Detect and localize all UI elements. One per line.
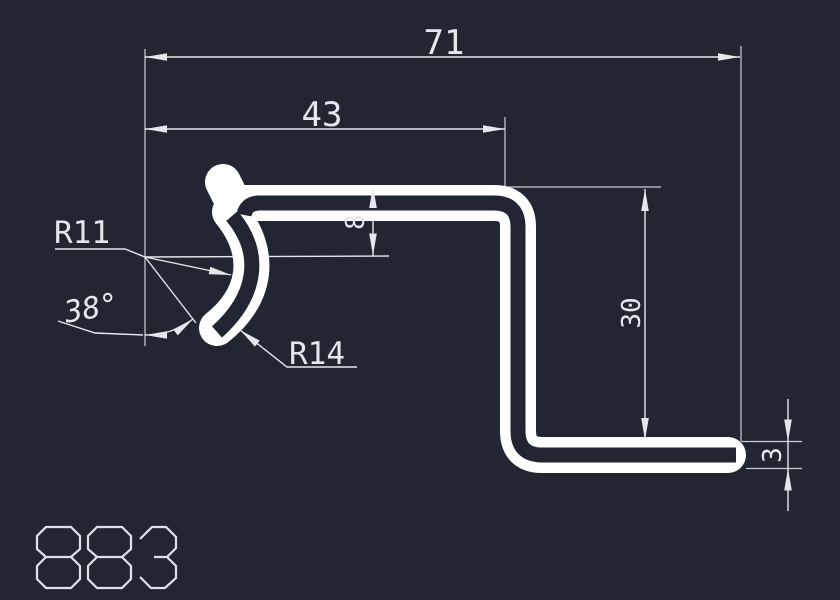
bend-angle-label: 38° — [61, 287, 121, 331]
arrowhead-thickness-top — [784, 420, 792, 442]
part-number-digit-3 — [140, 527, 176, 588]
arrowhead-upper-right — [483, 125, 505, 133]
arrowhead-leg-bottom — [641, 418, 649, 440]
arrowhead-overall-left — [145, 53, 167, 61]
profile-main-body-hollow — [244, 203, 736, 455]
arrowhead-thickness-bottom — [784, 469, 792, 491]
leg-height-label: 30 — [617, 297, 647, 328]
angle-leg-line — [145, 257, 196, 323]
arrowhead-arc-lower — [145, 331, 167, 339]
upper-width-label: 43 — [302, 95, 343, 135]
offset-depth-label: 8 — [341, 214, 371, 230]
profile-outline — [217, 182, 736, 455]
overall-width-label: 71 — [424, 23, 465, 63]
arrowhead-r14 — [240, 330, 260, 347]
thickness-label: 3 — [758, 447, 788, 463]
technical-drawing: 71 43 8 30 3 R11 R14 38° 883 — [0, 0, 840, 600]
dimension-labels: 71 43 8 30 3 R11 R14 38° — [54, 23, 788, 463]
arrowhead-offset-bottom — [369, 234, 377, 256]
part-number: 883 — [37, 527, 176, 600]
arrowhead-overall-right — [718, 53, 740, 61]
arrowhead-arc-upper — [173, 319, 193, 335]
cad-canvas: 71 43 8 30 3 R11 R14 38° 883 — [0, 0, 840, 600]
radius-large-label: R14 — [289, 336, 345, 372]
arrowhead-r11 — [209, 267, 231, 275]
arrowhead-leg-top — [641, 189, 649, 211]
extension-lines — [55, 46, 802, 469]
radius-small-label: R11 — [54, 215, 110, 251]
angle-dimension-arc — [145, 319, 193, 335]
profile-main-body — [223, 182, 728, 455]
arrowhead-upper-left — [145, 125, 167, 133]
